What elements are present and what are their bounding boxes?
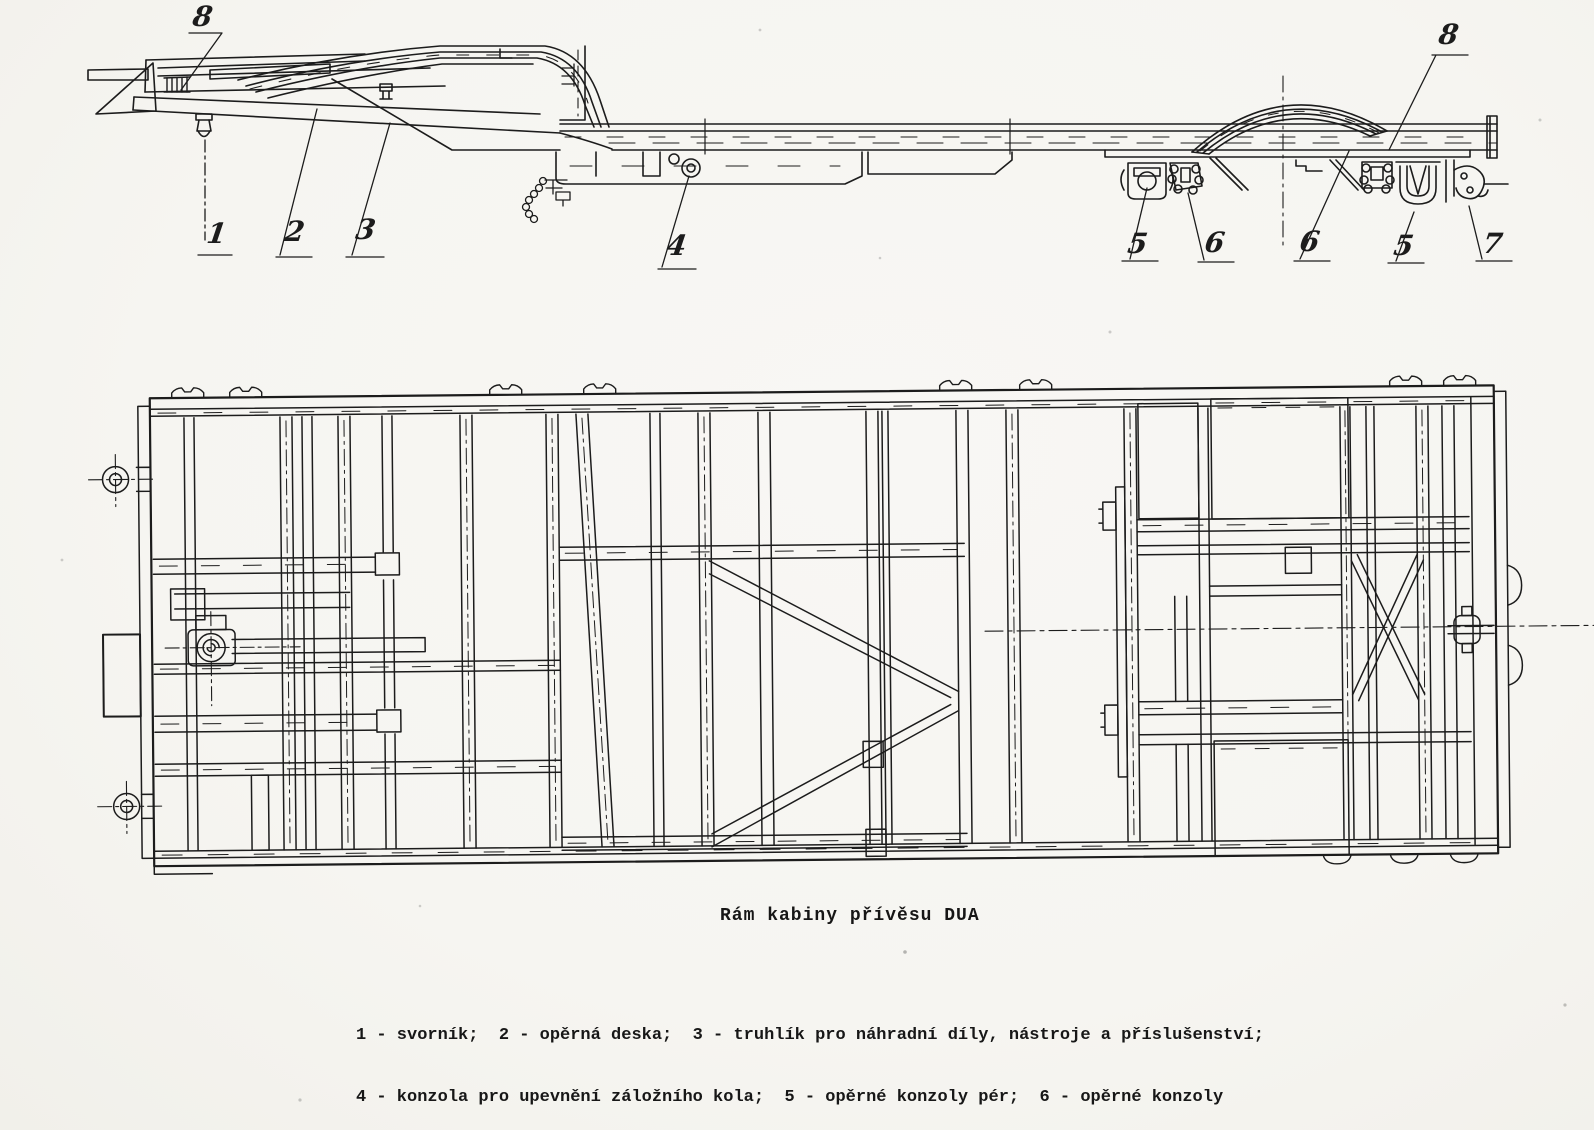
scanned-drawing-page: 8 1 2 3 4 5 6 6 5 7 8 Rám kabiny přívěsu… [0, 0, 1594, 1130]
gusset-triangle [96, 63, 156, 114]
plan-centerline [985, 625, 1594, 631]
bolt-clip-top [1099, 502, 1116, 530]
legend: 1 - svorník; 2 - opěrná deska; 3 - truhl… [356, 985, 1356, 1130]
left-eye-top [88, 454, 156, 507]
vertical-members [184, 406, 1458, 863]
plan-view-drawing [88, 374, 1594, 875]
legend-line-1: 1 - svorník; 2 - opěrná deska; 3 - truhl… [356, 1026, 1356, 1047]
middle-rails [559, 543, 967, 850]
diagonal-strut-right [1330, 160, 1364, 190]
spring-bracket-left [1121, 163, 1173, 199]
crosshatch-pad [103, 634, 141, 716]
storage-box [556, 152, 1012, 184]
legend-line-2: 4 - konzola pro upevnění záložního kola;… [356, 1088, 1356, 1109]
edge-bumps [1507, 565, 1522, 685]
strut-bracket-left [1168, 163, 1203, 194]
support-plate [380, 84, 392, 99]
wheel-arch [1192, 105, 1387, 154]
tow-hook-plan [985, 605, 1594, 657]
tie-down-hooks [164, 77, 190, 92]
panel [1214, 740, 1349, 856]
gusset-plate-edge [332, 79, 560, 150]
technical-drawing-svg [0, 0, 1594, 1130]
spare-wheel-bracket [682, 159, 700, 177]
drawbar-front [88, 54, 612, 150]
drawing-title: Rám kabiny přívěsu DUA [720, 905, 1140, 927]
diagonal-strut-left [1210, 158, 1248, 190]
kingpin [196, 114, 212, 137]
tongue-rails [153, 551, 562, 851]
bolt-clip-bottom [1101, 705, 1118, 735]
main-rail [560, 116, 1497, 158]
tow-hook-side [1446, 160, 1508, 202]
strut-bracket-right [1360, 162, 1394, 193]
rear-brackets [1121, 76, 1508, 250]
chevron-brace [709, 558, 960, 846]
right-section [1136, 397, 1472, 857]
spring-bracket-right [1396, 162, 1440, 204]
panel [1211, 398, 1349, 519]
panel [1138, 403, 1199, 519]
